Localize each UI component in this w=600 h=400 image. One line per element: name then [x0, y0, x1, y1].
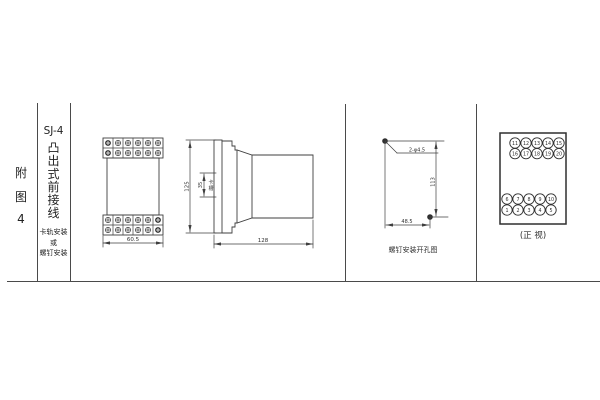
hole-diameter-label: 2-φ4.5 [409, 148, 425, 154]
slot-dimension: 35 [198, 182, 204, 188]
top-terminal-block [103, 138, 163, 158]
terminal-number: 7 [516, 197, 519, 203]
terminal-number: 1 [505, 208, 508, 214]
title-char: 线 [37, 207, 70, 220]
bottom-terminal-numbers: 6 7 8 9 10 1 2 3 4 5 [502, 194, 556, 215]
terminal-number: 20 [556, 151, 562, 157]
series-label: SJ-4 [37, 125, 70, 137]
outline-front-view-drawing: 60.5 [95, 130, 175, 255]
side-view-drawing: 125 35 卡 槽 128 [180, 130, 325, 252]
terminal-number: 16 [512, 151, 518, 157]
terminal-number: 4 [538, 208, 541, 214]
terminal-number: 9 [538, 197, 541, 203]
height-dimension: 125 [185, 181, 191, 192]
relay-body [107, 158, 159, 215]
terminal-number: 19 [545, 151, 551, 157]
din-slot-dimension: 35 卡 槽 [198, 173, 216, 197]
depth-dimension-lines: 128 [214, 220, 313, 248]
depth-dimension: 128 [258, 238, 269, 244]
mount-line: 或 [37, 238, 70, 249]
terminal-number: 5 [549, 208, 552, 214]
mount-line: 螺钉安装 [37, 248, 70, 259]
mount-type-label: 卡轨安装 或 螺钉安装 [37, 227, 70, 259]
fig-char: 4 [17, 212, 25, 226]
drill-diagram-caption: 螺钉安装开孔图 [389, 245, 438, 254]
fig-char: 附 [15, 164, 27, 181]
drill-diagram-drawing: 2-φ4.5 113 48.5 螺钉安装开孔图 [360, 125, 460, 260]
horizontal-dimension: 48.5 [401, 219, 412, 225]
terminal-number: 15 [556, 141, 562, 147]
bottom-rule [7, 281, 600, 282]
terminal-number: 17 [523, 151, 529, 157]
terminal-number: 14 [545, 141, 551, 147]
horizontal-dimension-lines: 48.5 [386, 219, 429, 225]
slot-label-char: 卡 [208, 179, 213, 186]
divider-right [476, 104, 477, 281]
mounting-flange [214, 140, 222, 233]
divider-left-inner [70, 103, 71, 281]
width-dimension-lines: 60.5 [103, 236, 163, 247]
vertical-title: 凸 出 式 前 接 线 [37, 142, 70, 220]
title-column: SJ-4 凸 出 式 前 接 线 卡轨安装 或 螺钉安装 [37, 125, 70, 259]
divider-middle [345, 104, 346, 281]
terminal-number: 2 [516, 208, 519, 214]
terminal-number: 8 [527, 197, 530, 203]
vertical-dimension: 113 [431, 177, 437, 187]
terminal-number: 13 [534, 141, 540, 147]
terminal-number: 12 [523, 141, 529, 147]
top-terminal-numbers: 11 12 13 14 15 16 17 18 19 20 [510, 138, 564, 159]
front-view-drawing: 11 12 13 14 15 16 17 18 19 20 6 7 8 9 10… [495, 125, 600, 247]
width-dimension: 60.5 [127, 237, 140, 243]
front-view-caption: (正 视) [520, 230, 546, 241]
mount-line: 卡轨安装 [37, 227, 70, 238]
terminal-number: 18 [534, 151, 540, 157]
terminal-number: 3 [527, 208, 530, 214]
terminal-number: 10 [548, 197, 554, 203]
figure-number-label: 附 图 4 [10, 164, 32, 226]
hole-callout: 2-φ4.5 [385, 141, 438, 154]
terminal-number: 6 [505, 197, 508, 203]
terminal-number: 11 [512, 141, 518, 147]
fig-char: 图 [15, 188, 27, 205]
bottom-terminal-block [103, 215, 163, 235]
case-profile [222, 141, 313, 233]
slot-label-char: 槽 [208, 185, 213, 192]
figure-canvas: 附 图 4 SJ-4 凸 出 式 前 接 线 卡轨安装 或 螺钉安装 [0, 0, 600, 400]
